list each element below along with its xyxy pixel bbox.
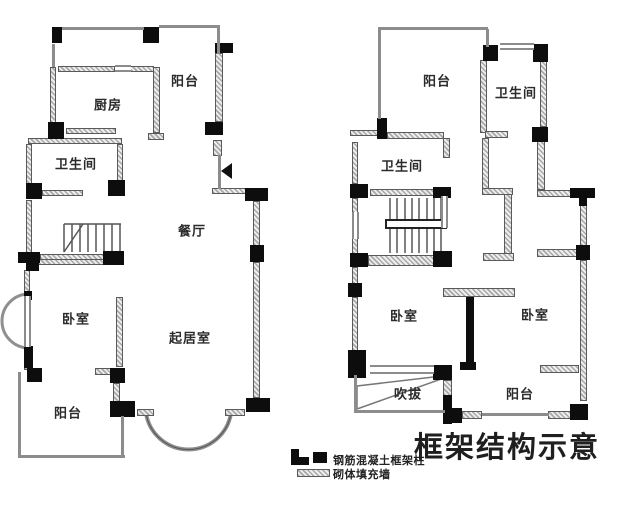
- wall-segment: [504, 194, 512, 254]
- wall-segment: [482, 138, 489, 190]
- wall-segment: [137, 409, 154, 416]
- column: [24, 346, 33, 368]
- wall-segment: [537, 140, 545, 190]
- room-label-balcony-top-f2: 阳台: [423, 71, 451, 90]
- column: [348, 350, 366, 378]
- wall-segment: [117, 144, 123, 182]
- room-label-dining: 餐厅: [178, 221, 206, 240]
- column: [205, 122, 223, 135]
- wall-segment: [38, 259, 110, 265]
- room-label-void: 吹拔: [394, 384, 422, 403]
- wall-segment: [540, 365, 579, 373]
- wall-segment: [253, 201, 260, 246]
- wall-segment: [213, 140, 222, 156]
- wall-segment: [352, 267, 358, 284]
- wall-segment: [225, 409, 245, 416]
- column: [143, 27, 159, 43]
- column: [110, 401, 135, 417]
- rail-line: [217, 28, 220, 54]
- partition-wall: [466, 297, 474, 364]
- column: [377, 118, 387, 139]
- room-label-balcony-bottom-f2: 阳台: [506, 384, 534, 403]
- bow-window-arc-edge: [146, 413, 231, 449]
- wall-segment: [537, 190, 571, 197]
- rail-line: [62, 27, 144, 30]
- wall-segment: [480, 60, 487, 133]
- door-wall-line: [218, 155, 221, 189]
- window: [500, 43, 534, 50]
- wall-segment: [443, 380, 452, 396]
- room-label-kitchen: 厨房: [94, 95, 122, 114]
- wall-segment: [483, 253, 514, 261]
- rail-line: [482, 413, 549, 416]
- wall-segment: [28, 138, 122, 144]
- stairs-floor2: [386, 198, 446, 253]
- rail-line: [18, 455, 125, 458]
- room-label-bedroom-right-f2: 卧室: [521, 305, 549, 324]
- window: [24, 296, 31, 347]
- wall-segment: [370, 189, 434, 196]
- wall-segment: [537, 249, 578, 257]
- wall-segment: [130, 66, 154, 72]
- wall-segment: [148, 133, 164, 140]
- wall-segment: [485, 131, 508, 138]
- rail-line: [159, 25, 220, 28]
- column: [350, 253, 368, 267]
- wall-segment: [26, 200, 32, 254]
- rail-line: [354, 410, 445, 413]
- wall-segment: [580, 205, 587, 246]
- wall-segment: [42, 190, 83, 196]
- wall-segment: [50, 67, 56, 123]
- bow-window-arc: [146, 413, 231, 449]
- rail-line: [378, 27, 488, 30]
- column: [48, 122, 64, 139]
- column: [570, 404, 588, 420]
- column: [433, 365, 452, 380]
- rail-line: [52, 44, 55, 67]
- rail-line: [121, 416, 124, 456]
- column: [533, 44, 548, 62]
- room-label-bedroom-left-f2: 卧室: [390, 306, 418, 325]
- window: [115, 65, 131, 72]
- room-label-bedroom-f1: 卧室: [62, 309, 90, 328]
- wall-segment: [215, 53, 223, 122]
- wall-segment: [95, 368, 111, 375]
- wall-segment: [352, 297, 358, 351]
- column: [103, 251, 124, 265]
- partition-wall: [460, 362, 476, 370]
- wall-segment: [58, 66, 115, 72]
- column: [576, 245, 590, 260]
- wall-segment: [26, 144, 32, 188]
- rail-line: [18, 372, 21, 458]
- wall-segment: [443, 138, 450, 158]
- wall-segment: [548, 411, 572, 419]
- window: [441, 196, 448, 228]
- column: [348, 283, 362, 297]
- stairs-floor1: [64, 224, 121, 252]
- column: [245, 188, 268, 201]
- wall-segment: [540, 61, 547, 127]
- column: [350, 184, 368, 198]
- column: [483, 45, 498, 61]
- column: [433, 251, 452, 267]
- wall-segment: [368, 255, 436, 266]
- room-label-bathroom-top-f2: 卫生间: [495, 83, 537, 102]
- drawing-title: 框架结构示意: [414, 424, 600, 466]
- wall-segment: [66, 128, 116, 134]
- floorplan-canvas: 阳台 厨房 卫生间 餐厅 卧室 起居室 阳台 阳台 卫生间 卫生间 卧室 卧室 …: [0, 0, 640, 505]
- column: [579, 197, 587, 206]
- column: [27, 368, 42, 382]
- wall-segment: [387, 132, 444, 139]
- window: [352, 212, 359, 239]
- column: [110, 368, 125, 383]
- wall-segment: [153, 67, 160, 133]
- column: [108, 180, 125, 196]
- room-label-bathroom-f1: 卫生间: [55, 154, 97, 173]
- column: [250, 245, 264, 262]
- wall-segment: [443, 288, 515, 297]
- wall-segment: [352, 238, 358, 254]
- window: [370, 365, 434, 374]
- wall-segment: [580, 260, 587, 401]
- wall-segment: [350, 130, 378, 136]
- room-label-bathroom-mid-f2: 卫生间: [381, 156, 423, 175]
- column: [26, 258, 39, 271]
- column: [26, 183, 42, 199]
- wall-segment: [462, 411, 482, 419]
- rail-line: [486, 29, 489, 47]
- wall-segment: [352, 198, 358, 213]
- rail-line: [378, 29, 381, 119]
- room-label-balcony-bottom-f1: 阳台: [54, 403, 82, 422]
- column: [246, 398, 270, 412]
- room-label-living: 起居室: [169, 328, 211, 347]
- column: [443, 408, 462, 423]
- wall-segment: [253, 262, 260, 398]
- door-swing-icon: [221, 163, 232, 179]
- wall-segment: [116, 297, 123, 367]
- column: [52, 27, 62, 43]
- wall-segment: [352, 142, 358, 184]
- room-label-balcony-top-f1: 阳台: [171, 71, 199, 90]
- rail-line: [354, 375, 357, 412]
- column: [532, 127, 548, 142]
